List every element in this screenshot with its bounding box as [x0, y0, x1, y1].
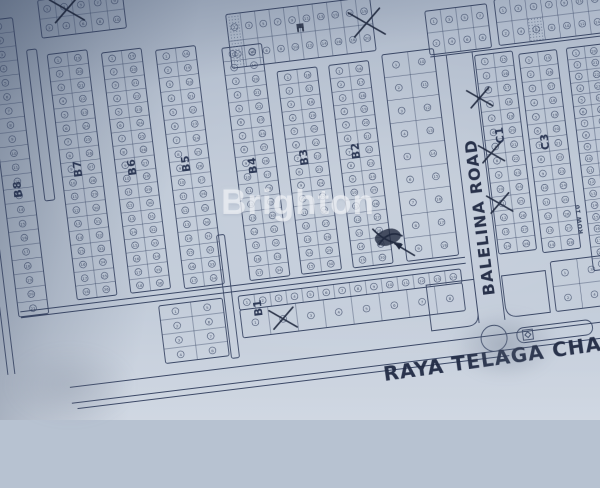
plot-number: 25 — [371, 187, 377, 193]
plot-number: 5 — [580, 97, 584, 102]
plot-number: 6 — [65, 126, 69, 131]
plot-number: 7 — [276, 19, 280, 24]
plot-number: 4 — [579, 86, 583, 91]
plot-number: 18 — [308, 99, 314, 105]
plot-number: 5 — [172, 110, 176, 115]
plot-number: 18 — [350, 37, 356, 43]
plot-number: 11 — [304, 15, 310, 21]
plot-number: 30 — [93, 205, 99, 211]
plot-number: 13 — [318, 14, 324, 20]
plot-number: 3 — [400, 108, 404, 113]
plot-number: 8 — [298, 169, 302, 174]
plot-number: 13 — [75, 221, 81, 227]
plot-number: 12 — [248, 201, 254, 207]
plot-marker — [0, 23, 2, 31]
plot-number: 8 — [279, 46, 283, 51]
plot-number: 26 — [520, 212, 526, 218]
plot-number: 7 — [421, 299, 425, 304]
plot-number: 15 — [253, 242, 259, 248]
plot-number: 9 — [113, 0, 117, 3]
plot-number: 9 — [541, 171, 545, 176]
plot-number: 16 — [80, 262, 86, 268]
plot-number: 10 — [114, 17, 120, 23]
plot-number: 20 — [253, 76, 259, 82]
plot-number: 4 — [450, 39, 454, 44]
plot-number: 17 — [23, 249, 29, 255]
plot-number: 24 — [318, 180, 324, 186]
plot-number: 16 — [547, 69, 553, 75]
plot-number: 13 — [590, 191, 596, 197]
plot-number: 16 — [134, 256, 140, 262]
plot-number: 16 — [305, 72, 311, 78]
plot-number: 22 — [557, 154, 563, 160]
plot-number: 1 — [254, 320, 258, 325]
plot-number: 4 — [293, 294, 297, 299]
plot-number: 18 — [442, 242, 448, 248]
plot-number: 5 — [63, 112, 67, 117]
plot-number: 5 — [532, 4, 536, 9]
plot-number: 15 — [433, 173, 439, 179]
plot-number: 19 — [185, 65, 191, 71]
plot-number: 4 — [236, 92, 240, 97]
plot-number: 21 — [592, 60, 598, 66]
plot-number: 2 — [166, 68, 170, 73]
plot-number: 10 — [542, 185, 548, 191]
plot-number: 3 — [577, 74, 581, 79]
plot-number: 10 — [419, 59, 425, 65]
plot-number: 9 — [299, 183, 303, 188]
plot-number: 24 — [517, 184, 523, 190]
plot-number: 24 — [137, 120, 143, 126]
plot-number: 3 — [277, 296, 281, 301]
plot-number: 27 — [375, 214, 381, 220]
plot-number: 10 — [387, 282, 393, 288]
plot-number: 16 — [189, 264, 195, 270]
plot-number: 20 — [554, 126, 560, 132]
plot-number: 9 — [497, 172, 501, 177]
plot-number: 17 — [596, 237, 600, 243]
plot-number: 24 — [194, 135, 200, 141]
plot-number: 14 — [592, 202, 598, 208]
plot-number: 2 — [112, 69, 116, 74]
plot-number: 18 — [84, 289, 90, 295]
plot-number: 28 — [144, 173, 150, 179]
plot-number: 2 — [288, 88, 292, 93]
plot-number: 14 — [186, 236, 192, 242]
plot-number: 9 — [11, 136, 15, 141]
plot-number: 12 — [501, 215, 507, 221]
plot-number: 36 — [103, 286, 109, 292]
plot-number: 30 — [270, 213, 276, 219]
stippled-plot — [502, 271, 551, 318]
plot-number: 23 — [258, 117, 264, 123]
plot-number: 4 — [61, 98, 65, 103]
block-B3: 1234567891011121314151617181920212223242… — [277, 67, 342, 274]
plot-number: 8 — [414, 223, 418, 228]
plot-number: 5 — [293, 129, 297, 134]
plot-number: 20 — [28, 291, 34, 297]
plot-number: 2 — [435, 40, 439, 45]
plot-number: 12 — [579, 21, 585, 27]
plot-number: 9 — [563, 0, 567, 5]
plot-number: 16 — [595, 226, 600, 232]
plot-number: 8 — [243, 147, 247, 152]
plot-number: 8 — [584, 132, 588, 137]
plot-number: 20 — [311, 126, 317, 132]
plot-number: 29 — [92, 191, 98, 197]
plot-number: 1 — [245, 299, 249, 304]
plot-number: 32 — [207, 247, 213, 253]
plot-number: 11 — [353, 203, 359, 209]
plot-number: 3 — [234, 79, 238, 84]
plot-number: 18 — [137, 282, 143, 288]
plot-number: 23 — [316, 167, 322, 173]
plot-number: 21 — [30, 305, 36, 311]
plot-number: 15 — [20, 221, 26, 227]
plot-number: 6 — [466, 37, 470, 42]
plot-number: 1 — [394, 62, 398, 67]
block-label-C3: C3 — [538, 133, 553, 151]
plot-number: 29 — [268, 199, 274, 205]
plot-number: 12 — [425, 105, 431, 111]
plot-number: 15 — [545, 55, 551, 61]
plot-number: 19 — [552, 112, 558, 118]
plot-number: 10 — [11, 150, 17, 156]
plot-number: 18 — [506, 99, 512, 105]
plot-number: 1 — [111, 56, 115, 61]
plot-number: 11 — [544, 199, 550, 205]
plot-number: 17 — [358, 79, 364, 85]
plot-number: 4 — [343, 109, 347, 114]
plot-number: 15 — [332, 12, 338, 18]
plot-number: 1 — [174, 308, 178, 313]
plot-number: 15 — [501, 56, 507, 62]
plot-number: 20 — [365, 35, 371, 41]
plot-number: 4 — [337, 309, 341, 314]
plot-number: 7 — [478, 13, 482, 18]
plot-number: 10 — [293, 44, 299, 50]
block-B8: 123456789101112131415161718192021 — [0, 18, 49, 317]
plot-number: 20 — [77, 69, 83, 75]
plot-number: 6 — [239, 120, 243, 125]
plot-number: 5 — [309, 292, 313, 297]
plot-number: 13 — [129, 216, 135, 222]
plot-number: 7 — [96, 0, 100, 5]
plot-number: 12 — [74, 207, 80, 213]
plot-number: 26 — [321, 207, 327, 213]
plot-number: 16 — [436, 196, 442, 202]
plot-number: 18 — [183, 51, 189, 57]
block-label-B6: B6 — [125, 158, 140, 177]
plot-number: 15 — [79, 248, 85, 254]
plot-number: 6 — [294, 142, 298, 147]
plot-number: 3 — [448, 17, 452, 22]
plot-number: 4 — [116, 96, 120, 101]
plot-number: 27 — [566, 225, 572, 231]
plot-number: 6 — [82, 21, 86, 26]
plot-number: 15 — [593, 214, 599, 220]
plot-number: 22 — [256, 103, 262, 109]
plot-number: 32 — [151, 227, 157, 233]
plot-number: 3 — [177, 337, 181, 342]
plot-number: 13 — [250, 215, 256, 221]
block-bottom-left: 12345678 — [159, 298, 230, 363]
plot-number: 4 — [403, 131, 407, 136]
pen-symbol — [296, 23, 304, 31]
plot-number: 19 — [361, 8, 367, 14]
block-label-B1: B1 — [251, 299, 266, 318]
plot-number: 12 — [589, 179, 595, 185]
plot-number: 16 — [255, 256, 261, 262]
plot-number: 12 — [355, 217, 361, 223]
plot-number: 2 — [397, 85, 401, 90]
plot-number: 28 — [201, 191, 207, 197]
plot-number: 14 — [549, 242, 555, 248]
plot-number: 17 — [136, 269, 142, 275]
plot-number: 5 — [490, 116, 494, 121]
plot-number: 19 — [75, 55, 81, 61]
plot-number: 14 — [131, 229, 137, 235]
plot-number: 10 — [70, 180, 76, 186]
plot-number: 6 — [207, 319, 211, 324]
plot-number: 14 — [451, 274, 457, 280]
row-width-label: ROW 10 — [574, 204, 585, 234]
plot-number: 6 — [536, 128, 540, 133]
plot-number: 14 — [430, 151, 436, 157]
plot-number: 28 — [568, 239, 574, 245]
plot-number: 19 — [27, 277, 33, 283]
block-label-C1: C1 — [492, 126, 507, 144]
plot-number: 22 — [190, 107, 196, 113]
plot-number: 28 — [90, 178, 96, 184]
plot-number: 23 — [136, 107, 142, 113]
plot-number: 11 — [181, 193, 187, 199]
plot-number: 21 — [189, 93, 195, 99]
plot-number: 12 — [545, 213, 551, 219]
plot-number: 23 — [192, 121, 198, 127]
plot-number: 12 — [182, 208, 188, 214]
plot-number: 24 — [561, 183, 567, 189]
x-mark-annotation — [269, 307, 297, 330]
plot-number: 2 — [529, 72, 533, 77]
plot-number: 21 — [313, 140, 319, 146]
plot-number: 3 — [517, 6, 521, 11]
plot-number: 1 — [483, 59, 487, 64]
plot-number: 13 — [428, 128, 434, 134]
block-corner-right — [502, 271, 551, 318]
plot-number: 12 — [307, 42, 313, 48]
plot-number: 3 — [60, 85, 64, 90]
plot-number: 14 — [77, 234, 83, 240]
block-label-B2: B2 — [348, 142, 363, 161]
plot-number: 6 — [173, 124, 177, 129]
plot-number: 6 — [393, 303, 397, 308]
plot-number: 30 — [328, 261, 334, 267]
plot-number: 7 — [583, 121, 587, 126]
plot-number: 17 — [439, 219, 445, 225]
plot-number: 4 — [179, 352, 183, 357]
plot-number: 16 — [336, 39, 342, 45]
plot-number: 6 — [5, 94, 9, 99]
plot-number: 4 — [2, 66, 6, 71]
plot-number: 7 — [241, 133, 245, 138]
plot-number: 1 — [563, 270, 567, 275]
plot-number: 29 — [146, 187, 152, 193]
plot-number: 8 — [540, 157, 544, 162]
plot-number: 12 — [303, 223, 309, 229]
plot-number: 3 — [247, 23, 251, 28]
plot-number: 20 — [131, 67, 137, 73]
plot-number: 23 — [595, 83, 600, 89]
plot-number: 24 — [260, 131, 266, 137]
plot-number: 14 — [505, 243, 511, 249]
plot-number: 33 — [275, 254, 281, 260]
plot-number: 22 — [315, 153, 321, 159]
plot-number: 23 — [82, 109, 88, 115]
plot-number: 19 — [310, 113, 316, 119]
plot-number: 33 — [152, 240, 158, 246]
plot-number: 7 — [411, 200, 415, 205]
plot-number: 31 — [95, 218, 101, 224]
plot-number: 6 — [346, 136, 350, 141]
plot-number: 3 — [0, 52, 4, 57]
plot-number: 27 — [142, 160, 148, 166]
plot-number: 2 — [58, 71, 62, 76]
plot-number: 21 — [555, 140, 561, 146]
plot-number: 8 — [211, 348, 215, 353]
plot-number: 5 — [206, 305, 210, 310]
plot-number: 6 — [119, 123, 123, 128]
plot-number: 26 — [197, 163, 203, 169]
plot-number: 8 — [495, 158, 499, 163]
plot-number: 27 — [88, 164, 94, 170]
plot-number: 34 — [154, 253, 160, 259]
plot-number: 19 — [508, 113, 514, 119]
plot-number: 14 — [307, 250, 313, 256]
plot-number: 7 — [120, 136, 124, 141]
plot-number: 28 — [266, 185, 272, 191]
plot-number: 13 — [503, 229, 509, 235]
plot-number: 17 — [306, 86, 312, 92]
plot-number: 10 — [498, 186, 504, 192]
plot-number: 7 — [341, 288, 345, 293]
plot-number: 8 — [356, 286, 360, 291]
plot-number: 26 — [373, 201, 379, 207]
plot-number: 7 — [66, 139, 70, 144]
plot-number: 10 — [352, 190, 358, 196]
plot-number: 20 — [187, 79, 193, 85]
plot-number: 5 — [406, 154, 410, 159]
plot-number: 5 — [117, 109, 121, 114]
plot-number: 21 — [133, 80, 139, 86]
plot-number: 15 — [188, 250, 194, 256]
plot-number: 22 — [80, 96, 86, 102]
plot-number: 28 — [524, 241, 530, 247]
plot-number: 30 — [204, 219, 210, 225]
plot-number: 16 — [22, 235, 28, 241]
plot-number: 10 — [586, 156, 592, 162]
plot-number: 22 — [594, 71, 600, 77]
plot-number: 15 — [360, 257, 366, 263]
block-top-1: 1234567891011121314151617181920 — [226, 0, 377, 68]
plot-number: 8 — [349, 163, 353, 168]
plot-number: 35 — [102, 273, 108, 279]
plot-number: 36 — [157, 280, 163, 286]
plot-number: 31 — [149, 213, 155, 219]
plot-number: 6 — [325, 290, 329, 295]
plot-number: 15 — [308, 263, 314, 269]
block-top-right-1: 1234567891011121314 — [494, 0, 600, 45]
plot-number: 25 — [320, 194, 326, 200]
plot-number: 19 — [129, 53, 135, 59]
plot-number: 2 — [576, 62, 580, 67]
plot-number: 21 — [511, 141, 517, 147]
plot-number: 11 — [302, 209, 308, 215]
plot-number: 11 — [246, 188, 252, 194]
plot-number: 14 — [321, 40, 327, 46]
plot-number: 25 — [139, 133, 145, 139]
plot-number: 6 — [265, 48, 269, 53]
plot-number: 31 — [271, 226, 277, 232]
plot-number: 32 — [273, 240, 279, 246]
plot-number: 13 — [305, 236, 311, 242]
plot-number: 5 — [238, 106, 242, 111]
plot-number: 3 — [309, 313, 313, 318]
plot-number: 11 — [577, 0, 583, 4]
plot-number: 9 — [417, 246, 421, 251]
plot-number: 8 — [481, 35, 485, 40]
plot-number: 13 — [356, 230, 362, 236]
plot-number: 17 — [504, 85, 510, 91]
plot-number: 3 — [114, 82, 118, 87]
plan-svg: 1234567891011121314151617181920211234567… — [0, 0, 600, 488]
plot-number: 23 — [515, 170, 521, 176]
plot-number: 34 — [276, 267, 282, 273]
block-channel-1 — [26, 49, 54, 201]
plot-number: 21 — [255, 90, 261, 96]
plot-number: 18 — [25, 263, 31, 269]
plot-number: 19 — [361, 106, 367, 112]
plot-number: 11 — [588, 167, 594, 173]
plot-number: 6 — [582, 109, 586, 114]
plot-number: 25 — [562, 197, 568, 203]
plot-number: 12 — [127, 202, 133, 208]
plot-number: 8 — [98, 19, 102, 24]
block-corner-left — [426, 279, 479, 331]
plot-number: 9 — [351, 176, 355, 181]
plot-number: 15 — [132, 242, 138, 248]
plot-number: 18 — [360, 93, 366, 99]
plot-number: 22 — [366, 147, 372, 153]
plot-number: 10 — [300, 196, 306, 202]
plot-number: 5 — [365, 306, 369, 311]
plot-number: 16 — [503, 71, 509, 77]
plot-number: 33 — [209, 261, 215, 267]
plot-number: 27 — [199, 177, 205, 183]
plot-number: 11 — [403, 280, 409, 286]
plot-number: 5 — [79, 2, 83, 7]
plot-number: 35 — [155, 267, 161, 273]
plot-number: 17 — [82, 275, 88, 281]
plot-number: 3 — [341, 95, 345, 100]
plot-number: 6 — [409, 177, 413, 182]
plot-number: 4 — [65, 23, 69, 28]
block-label-B4: B4 — [245, 156, 260, 175]
plot-number: 28 — [325, 234, 331, 240]
plot-number: 23 — [559, 168, 565, 174]
plot-number: 8 — [122, 149, 126, 154]
plot-number: 4 — [533, 100, 537, 105]
